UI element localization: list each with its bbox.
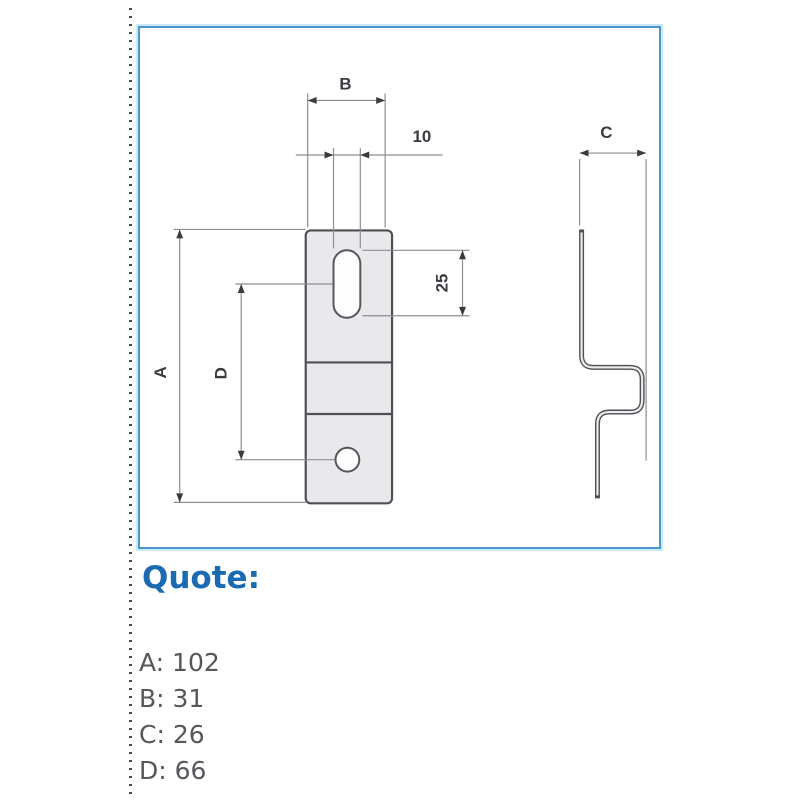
dim-d-label: D [139, 756, 158, 785]
dim-a-label: A [139, 648, 156, 677]
dim-c-label: C [139, 720, 156, 749]
quote-dimension-list: A: 102 B: 31 C: 26 D: 66 [139, 645, 220, 789]
dimension-a: A [151, 229, 306, 502]
label-b: B [339, 75, 351, 94]
dim-a-value: 102 [172, 648, 220, 677]
page: B 10 A [0, 0, 800, 800]
label-slot-length: 25 [433, 274, 452, 293]
profile-outline [582, 229, 643, 498]
dim-b-separator: : [156, 684, 172, 713]
quote-row-d: D: 66 [139, 753, 220, 789]
label-c: C [600, 123, 612, 142]
side-view [582, 229, 643, 498]
label-slot-width: 10 [412, 127, 431, 146]
quote-row-c: C: 26 [139, 717, 220, 753]
dim-b-label: B [139, 684, 156, 713]
round-hole [335, 448, 359, 472]
technical-drawing-panel: B 10 A [138, 26, 661, 549]
dim-d-separator: : [158, 756, 174, 785]
label-d: D [211, 367, 230, 379]
quote-row-b: B: 31 [139, 681, 220, 717]
dim-c-value: 26 [173, 720, 205, 749]
bracket-drawing: B 10 A [140, 28, 659, 547]
dotted-divider [129, 8, 132, 800]
quote-title: Quote: [142, 560, 260, 596]
dim-d-value: 66 [175, 756, 207, 785]
profile-core [582, 232, 643, 495]
dim-a-separator: : [156, 648, 172, 677]
dim-c-separator: : [156, 720, 172, 749]
slot-hole [334, 250, 361, 317]
quote-row-a: A: 102 [139, 645, 220, 681]
dimension-b: B [308, 75, 385, 228]
label-a: A [151, 366, 170, 378]
dim-b-value: 31 [173, 684, 205, 713]
